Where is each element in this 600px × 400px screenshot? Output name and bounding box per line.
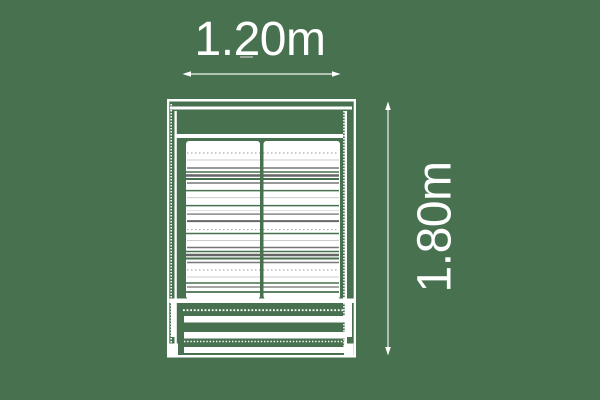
svg-text:1.80m: 1.80m (409, 162, 462, 293)
svg-text:1.20m: 1.20m (195, 13, 326, 66)
